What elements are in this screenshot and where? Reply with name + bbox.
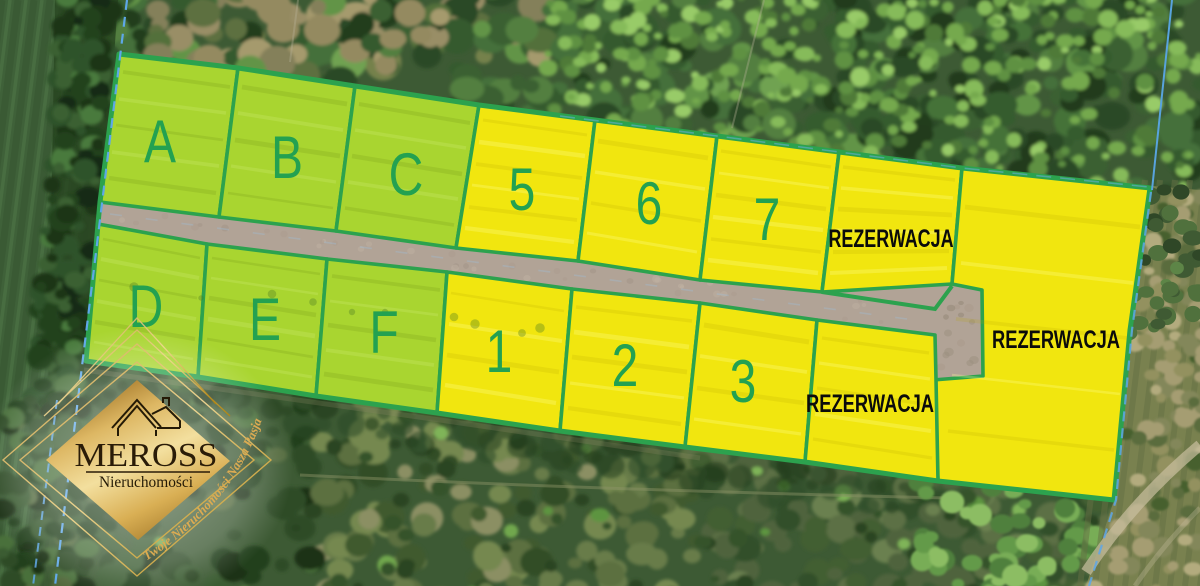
svg-text:REZERWACJA: REZERWACJA [806,390,934,418]
svg-text:F: F [369,299,398,366]
svg-text:E: E [249,286,281,353]
svg-text:7: 7 [754,186,781,253]
svg-text:1: 1 [486,318,513,385]
svg-text:Nieruchomości: Nieruchomości [99,474,194,491]
svg-text:5: 5 [509,156,536,223]
svg-text:B: B [271,124,303,191]
svg-text:REZERWACJA: REZERWACJA [992,326,1120,354]
svg-text:C: C [389,141,424,208]
svg-text:2: 2 [612,332,639,399]
svg-text:REZERWACJA: REZERWACJA [829,225,954,253]
svg-text:3: 3 [730,348,757,415]
svg-text:A: A [144,108,177,175]
svg-text:6: 6 [636,170,663,237]
svg-text:MEROSS: MEROSS [75,437,218,474]
